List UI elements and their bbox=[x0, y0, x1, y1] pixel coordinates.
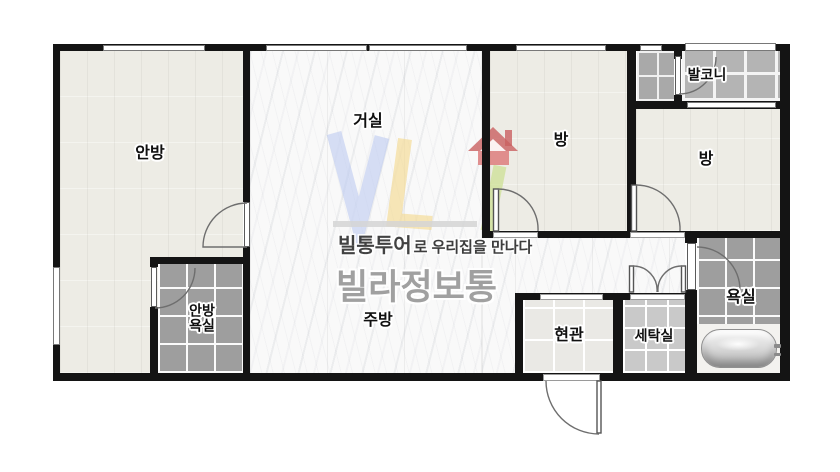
wall-anbang-living-upper bbox=[243, 51, 250, 202]
watermark-brand: 빌라정보통 bbox=[336, 259, 497, 310]
logo-underline-bar bbox=[333, 221, 477, 227]
label-geosil: 거실 bbox=[353, 113, 382, 131]
label-bang1: 방 bbox=[554, 132, 569, 150]
label-yoksil: 욕실 bbox=[726, 289, 755, 307]
logo-letter-v bbox=[334, 133, 382, 226]
wall-bottom bbox=[53, 373, 790, 381]
wall-bang1-bang2 bbox=[627, 51, 636, 238]
window-anbang-top bbox=[103, 45, 205, 51]
wall-master-bath-top bbox=[150, 257, 250, 264]
door-sill-bang1 bbox=[493, 232, 538, 238]
door-leaf-master-bath-gap bbox=[151, 267, 157, 307]
room-bang2-floor bbox=[636, 109, 780, 231]
label-setaksil: 세탁실 bbox=[635, 328, 674, 343]
wall-master-bath-left-upper bbox=[150, 257, 158, 267]
logo-letter-l bbox=[394, 139, 432, 223]
bathtub-drain-icon bbox=[774, 353, 781, 356]
wall-anbang-living-lower bbox=[243, 247, 250, 373]
window-living-top-right bbox=[369, 45, 467, 51]
label-bang2: 방 bbox=[699, 151, 714, 169]
watermark-tagline-rest: 로 우리집을 만나다 bbox=[414, 236, 533, 257]
window-balcony-room-divider bbox=[687, 102, 776, 108]
label-master-bath-line2: 욕실 bbox=[189, 318, 215, 334]
label-master-bath-line1: 안방 bbox=[189, 303, 215, 319]
window-anbang-left bbox=[53, 267, 60, 345]
label-hyeongwan: 현관 bbox=[554, 327, 583, 345]
wall-bathroom-left-upper bbox=[685, 231, 697, 243]
wall-bathroom-left-lower bbox=[685, 290, 697, 381]
wall-master-bath-left-lower bbox=[150, 307, 158, 381]
wall-right bbox=[780, 44, 790, 381]
label-jubang: 주방 bbox=[363, 312, 392, 330]
window-balcony-side-top bbox=[640, 45, 662, 51]
wall-living-bang1 bbox=[482, 51, 490, 238]
wall-entry-laundry-divider bbox=[613, 293, 623, 381]
wall-entry-left bbox=[515, 293, 523, 381]
door-sill-bang2 bbox=[630, 232, 685, 238]
door-arc-front bbox=[546, 381, 599, 434]
window-bang1-top bbox=[516, 45, 606, 51]
label-master-bath: 안방 욕실 bbox=[189, 304, 215, 335]
door-leaf-anbang-gap bbox=[244, 202, 250, 247]
door-sill-entry bbox=[540, 294, 603, 300]
door-sill-front-door bbox=[543, 374, 600, 381]
floorplan-canvas: 빌통투어 로 우리집을 만나다 빌라정보통 bbox=[0, 0, 840, 472]
label-balkoni: 발코니 bbox=[688, 67, 727, 82]
label-anbang: 안방 bbox=[135, 145, 164, 163]
balcony-side-section-floor bbox=[637, 51, 674, 101]
watermark-tagline-bold: 빌통투어 bbox=[338, 229, 412, 258]
window-living-top-left bbox=[266, 45, 367, 51]
door-sill-double-door bbox=[630, 294, 685, 300]
door-leaf-front bbox=[597, 381, 601, 433]
door-leaf-bathroom-gap bbox=[687, 243, 696, 290]
hallway-floor bbox=[515, 238, 685, 293]
door-leaf-balcony-gap bbox=[675, 56, 681, 95]
bathtub bbox=[701, 329, 777, 368]
bathtub-faucet-icon bbox=[774, 344, 781, 348]
window-balcony-top bbox=[685, 43, 776, 51]
